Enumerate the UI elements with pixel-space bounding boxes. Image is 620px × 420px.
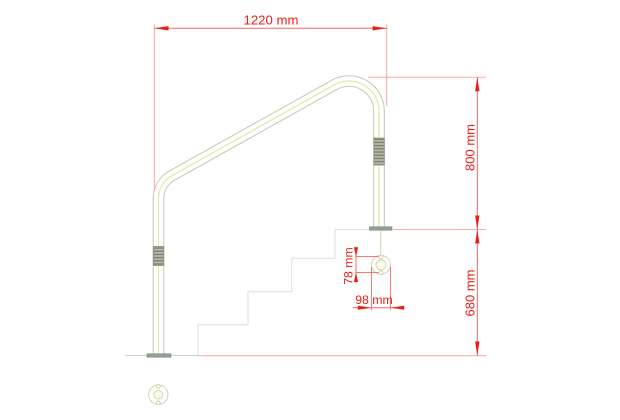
rail-centerline-highlight [159,81,380,354]
dimension-label-flange-diameter: 98 mm [355,293,393,307]
floor-flange-bolt-hole-bottom [156,401,160,405]
flange-bolt-hole-top [379,255,383,259]
drawing-canvas: 1220 mm 800 mm 680 mm 78 mm 98 mm [0,0,620,420]
dimension-label-height-upper: 800 mm [463,124,478,171]
arrowhead [373,26,387,30]
dimension-label-height-lower: 680 mm [463,270,478,317]
floor-flange [149,384,168,404]
anchor-flange-detail [372,231,391,275]
arrowhead [475,216,479,230]
base-plate-left [147,354,171,357]
arrowhead [475,77,479,91]
floor-flange-bolt-hole-top [156,384,160,388]
floor-flange-inner-circle [154,390,163,399]
arrowhead [475,230,479,244]
grip-sleeve-right [374,138,384,165]
handrail [147,81,392,357]
arrowhead [154,26,168,30]
dimension-height-upper: 800 mm [368,77,486,229]
grip-sleeve-left [153,247,163,266]
handrail-technical-drawing: 1220 mm 800 mm 680 mm 78 mm 98 mm [0,0,620,420]
flange-bolt-hole-bottom [379,271,383,275]
flange-inner-circle [376,260,386,270]
dimension-label-width: 1220 mm [244,13,299,28]
arrowhead [475,342,479,356]
deck-plate-right [370,227,393,230]
dimension-label-hole-spacing: 78 mm [342,247,356,285]
